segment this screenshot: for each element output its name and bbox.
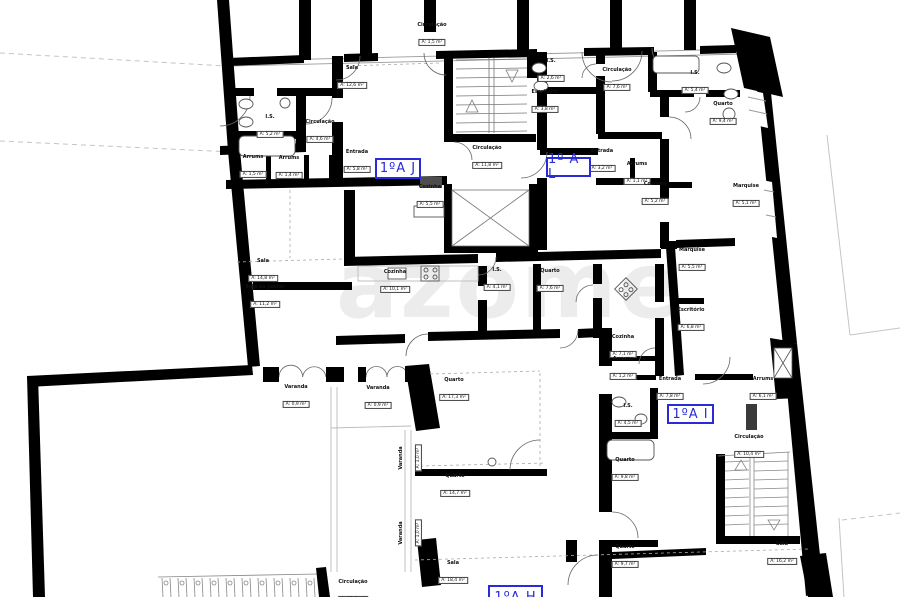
room-name: Arrums	[610, 357, 637, 363]
room-name: Quarto	[537, 269, 564, 275]
room-name: I.S.	[484, 268, 511, 274]
room-area: A: 6,8 m²	[678, 324, 705, 331]
room-label: Sala de JantarA: 11,2 m²	[245, 285, 285, 309]
room-name: I.S.	[615, 404, 642, 410]
room-area: A: 9,7 m²	[612, 561, 639, 568]
room-label: EscritórioA: 6,8 m²	[678, 308, 705, 332]
room-name: Circulação	[338, 580, 368, 586]
room-label: ArrumsA: 1,4 m²	[276, 156, 303, 180]
room-name: Quarto	[612, 458, 639, 464]
room-label: SalaA: 16,2 m²	[767, 542, 797, 566]
room-area: A: 11,2 m²	[250, 301, 280, 308]
floor-plan: azome	[0, 0, 900, 597]
room-label: VarandaA: 0,9 m²	[283, 385, 310, 409]
room-name: Circulação	[602, 68, 631, 74]
room-label: MarquiseA: 5,5 m²	[679, 248, 706, 272]
room-label: CirculaçãoA: 10,4 m²	[734, 435, 764, 459]
room-area: A: 0,9 m²	[283, 401, 310, 408]
room-label: ArrumsA: 1,2 m²	[610, 357, 637, 381]
room-area: A: 5,1 m²	[733, 200, 760, 207]
room-area: A: 10,4 m²	[734, 451, 764, 458]
room-name: Quarto	[710, 102, 737, 108]
room-name: Varanda	[365, 386, 392, 392]
room-label: EscritórioA: 3,8 m²	[532, 90, 559, 114]
room-label: SalaA: 14,8 m²	[248, 259, 278, 283]
room-label: VarandaA: 1,0 m²	[399, 445, 423, 472]
room-area: A: 5,5 m²	[417, 201, 444, 208]
room-label: QuartoA: 9,8 m²	[612, 458, 639, 482]
room-label: SalaA: 18,4 m²	[438, 561, 468, 585]
room-name: Escritório	[532, 90, 559, 96]
room-area: A: 9,8 m²	[612, 474, 639, 481]
room-labels-layer: CirculaçãoA: 1,5 m²SalaA: 12,6 m²I.S.A: …	[0, 0, 900, 597]
room-area: A: 5,8 m²	[344, 166, 371, 173]
room-name: Sala	[767, 542, 797, 548]
apartment-unit-label: 1ºA J	[375, 158, 421, 179]
room-area: A: 10,1 m²	[380, 286, 410, 293]
room-label: CirculaçãoA: 11,8 m²	[472, 146, 502, 170]
room-area: A: 1,5 m²	[240, 171, 267, 178]
room-name: Varanda	[399, 445, 405, 472]
room-name: Sala	[337, 66, 367, 72]
apartment-unit-label: 1ºA H	[488, 585, 543, 597]
room-area: A: 4,6 m²	[307, 136, 334, 143]
room-name: Arrums	[750, 377, 777, 383]
room-name: Circulação	[305, 120, 334, 126]
room-area: A: 7,8 m²	[657, 393, 684, 400]
room-name: Circulação	[417, 23, 446, 29]
room-label: CirculaçãoA: 7,6 m²	[602, 68, 631, 92]
room-name: Cozinha	[610, 335, 637, 341]
room-name: Entrada	[344, 150, 371, 156]
room-name: Quarto	[440, 474, 470, 480]
room-area: A: 1,0 m²	[415, 520, 422, 547]
room-area: A: 14,8 m²	[248, 275, 278, 282]
room-name: Cozinha	[417, 185, 444, 191]
room-area: A: 7,6 m²	[537, 285, 564, 292]
room-name: Sala de Jantar	[245, 285, 285, 291]
room-name: Arrums	[624, 162, 651, 168]
room-area: A: 2,6 m²	[538, 75, 565, 82]
room-area: A: 9,4 m²	[710, 118, 737, 125]
room-name: Varanda	[283, 385, 310, 391]
room-label: I.S.A: 5,4 m²	[682, 71, 709, 95]
room-name: Arrums	[240, 155, 267, 161]
room-name: Circulação	[734, 435, 764, 441]
room-area: A: 17,3 m²	[439, 394, 469, 401]
room-name: Cozinha	[642, 182, 669, 188]
room-label: QuartoA: 14,7 m²	[440, 474, 470, 498]
room-area: A: 12,6 m²	[337, 82, 367, 89]
room-name: I.S.	[257, 115, 284, 121]
room-area: A: 5,5 m²	[679, 264, 706, 271]
room-name: Entrada	[657, 377, 684, 383]
room-label: CirculaçãoA: 1,5 m²	[417, 23, 446, 47]
room-label: I.S.A: 2,6 m²	[538, 59, 565, 83]
room-area: A: 1,5 m²	[419, 39, 446, 46]
room-label: CirculaçãoA: 12,6 m²	[338, 580, 368, 597]
room-area: A: 7,6 m²	[604, 84, 631, 91]
room-name: Marquise	[679, 248, 706, 254]
room-label: SalaA: 12,6 m²	[337, 66, 367, 90]
room-name: Quarto	[612, 545, 639, 551]
room-area: A: 4,5 m²	[615, 420, 642, 427]
room-area: A: 6,1 m²	[750, 393, 777, 400]
room-label: EntradaA: 5,8 m²	[344, 150, 371, 174]
room-name: Entrada	[589, 149, 616, 155]
room-area: A: 5,4 m²	[682, 87, 709, 94]
room-label: CozinhaA: 5,2 m²	[642, 182, 669, 206]
room-area: A: 11,8 m²	[472, 162, 502, 169]
room-label: QuartoA: 9,7 m²	[612, 545, 639, 569]
room-label: EntradaA: 7,8 m²	[657, 377, 684, 401]
room-label: CirculaçãoA: 4,6 m²	[305, 120, 334, 144]
room-label: EntradaA: 3,2 m²	[589, 149, 616, 173]
room-label: MarquiseA: 5,1 m²	[733, 184, 760, 208]
room-label: ArrumsA: 1,5 m²	[240, 155, 267, 179]
room-area: A: 5,2 m²	[642, 198, 669, 205]
room-label: QuartoA: 9,4 m²	[710, 102, 737, 126]
room-name: I.S.	[682, 71, 709, 77]
room-label: CozinhaA: 5,5 m²	[417, 185, 444, 209]
room-area: A: 5,2 m²	[257, 131, 284, 138]
room-name: Escritório	[678, 308, 705, 314]
room-name: I.S.	[538, 59, 565, 65]
room-name: Circulação	[472, 146, 502, 152]
room-label: QuartoA: 17,3 m²	[439, 378, 469, 402]
room-area: A: 4,1 m²	[484, 284, 511, 291]
room-area: A: 16,2 m²	[767, 558, 797, 565]
room-area: A: 1,2 m²	[610, 373, 637, 380]
room-area: A: 1,0 m²	[415, 445, 422, 472]
room-label: ArrumsA: 6,1 m²	[750, 377, 777, 401]
room-name: Sala	[248, 259, 278, 265]
room-area: A: 0,9 m²	[365, 402, 392, 409]
room-label: VarandaA: 1,0 m²	[399, 520, 423, 547]
room-area: A: 3,2 m²	[589, 165, 616, 172]
room-name: Quarto	[439, 378, 469, 384]
room-name: Marquise	[733, 184, 760, 190]
room-area: A: 3,8 m²	[532, 106, 559, 113]
room-name: Arrums	[276, 156, 303, 162]
room-area: A: 18,4 m²	[438, 577, 468, 584]
apartment-unit-label: 1º A L	[546, 157, 591, 177]
room-area: A: 1,4 m²	[276, 172, 303, 179]
room-label: I.S.A: 5,2 m²	[257, 115, 284, 139]
room-label: CozinhaA: 10,1 m²	[380, 270, 410, 294]
apartment-unit-label: 1ºA I	[667, 404, 714, 424]
room-label: I.S.A: 4,1 m²	[484, 268, 511, 292]
room-label: I.S.A: 4,5 m²	[615, 404, 642, 428]
room-name: Varanda	[399, 520, 405, 547]
room-area: A: 14,7 m²	[440, 490, 470, 497]
room-label: QuartoA: 7,6 m²	[537, 269, 564, 293]
room-label: VarandaA: 0,9 m²	[365, 386, 392, 410]
room-name: Cozinha	[380, 270, 410, 276]
room-name: Sala	[438, 561, 468, 567]
